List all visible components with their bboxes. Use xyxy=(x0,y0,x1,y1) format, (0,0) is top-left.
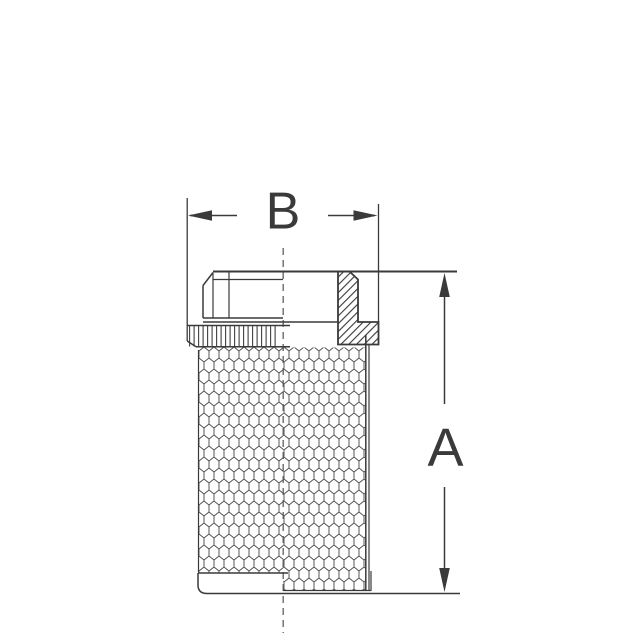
mesh-body xyxy=(199,335,370,591)
dimension-b-label: B xyxy=(266,183,301,241)
section-hatch-cap-wall xyxy=(338,272,379,345)
knurl-band xyxy=(187,326,290,347)
cap-assembly xyxy=(187,272,457,347)
arrow-right-icon xyxy=(354,210,378,221)
drawing-canvas: B A xyxy=(0,0,640,640)
arrow-left-icon xyxy=(188,210,212,221)
arrow-up-icon xyxy=(439,273,450,297)
dimension-a: A xyxy=(427,273,463,592)
strainer-technical-drawing: B A xyxy=(0,0,640,640)
cap-chamfer-edge xyxy=(203,273,213,286)
arrow-down-icon xyxy=(439,568,450,592)
mesh-right-half xyxy=(283,348,366,591)
mesh-left-half xyxy=(199,348,284,573)
knurl-texture xyxy=(188,326,279,347)
dimension-a-label: A xyxy=(427,418,463,478)
